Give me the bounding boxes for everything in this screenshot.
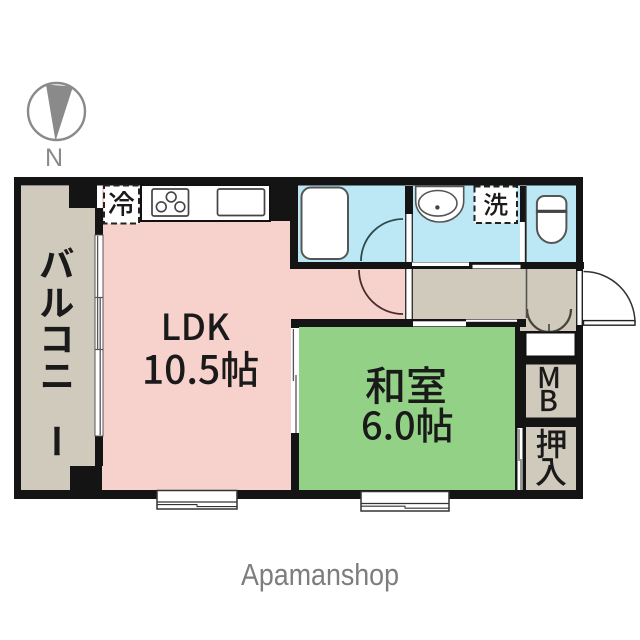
svg-text:N: N: [45, 144, 63, 172]
svg-text:Apamanshop: Apamanshop: [241, 557, 399, 592]
